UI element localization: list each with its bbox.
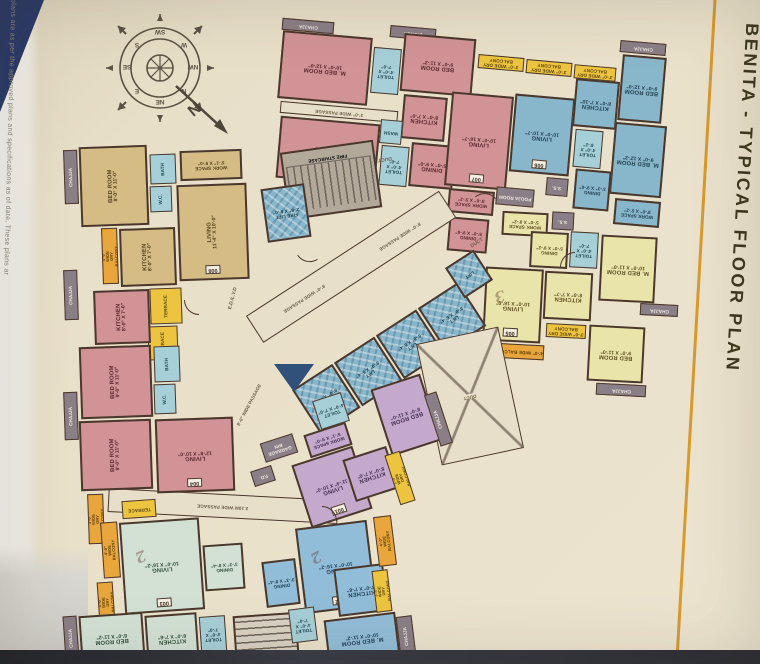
flat-number-005: 005 (502, 327, 518, 337)
compass-label-se: SE (122, 63, 131, 70)
room-005-kitchen: KITCHEN8'-0" X 7'-7" (543, 271, 593, 321)
room-ss: S.S. (545, 177, 568, 197)
chajja-strip: CHAJJA (63, 150, 79, 204)
room-004-wc: W.C. (153, 384, 176, 415)
balcony: 4'-0" WIDE BALCONY (373, 515, 397, 567)
fd-room: F.D. (250, 465, 276, 487)
room-006-dining: DINING3'-3" X 9'-6" (572, 169, 611, 212)
compass-label-sw: SW (154, 28, 165, 35)
fire-lift: FIRE LIFT2'-6" X 8'-0" (260, 183, 311, 243)
room-004-bedroom-1: BED ROOM9'-0" X 11'-0" (79, 345, 153, 419)
room-004-bedroom-2: BED ROOM9'-0" X 11'-0" (79, 419, 153, 491)
room-003-dining: DINING3'-3" X 8'-4" (202, 543, 245, 592)
room-ss: S.S. (552, 211, 575, 230)
room-006-work-space: WORK SPACE8'-0" X 5'-2" (613, 198, 661, 228)
unit-type-numeral: 3 (492, 286, 507, 306)
compass-label-ne: NE (155, 98, 165, 105)
room-004-kitchen: KITCHEN8'-0" X 7'-0" (93, 289, 151, 345)
door-arc-icon (184, 300, 199, 315)
photo-bottom-edge (0, 650, 760, 664)
room-007-dining: DINING5'-0" X 9'-6" (447, 216, 490, 253)
compass-label-e: E (134, 87, 139, 94)
room-005-bedroom: BED ROOM9'-0" X 11'-0" (587, 325, 646, 384)
room-008-bath: BATH (149, 154, 176, 185)
room-006-toilet: TOILET4'-0" X 6'-2" (572, 129, 603, 169)
room-002-toilet: TOILET4'-0" X 7'-0" (288, 607, 318, 644)
room-pooja: POOJA ROOM (495, 186, 534, 207)
room-003-toilet: TOILET4'-0" X 7'-0" (199, 615, 227, 653)
chajja-strip: CHAJJA (63, 392, 79, 440)
garbage-bin: GARBAGE BIN (260, 433, 299, 463)
room-006-bedroom: BED ROOM9'-0" X 12'-0" (617, 54, 667, 124)
flat-number-003: 003 (156, 597, 172, 607)
compass-rose-icon: SW NE SE NW S W E N N (96, 6, 246, 142)
room-004-living: LIVING12'-8" X 10'-0" 004 (155, 417, 236, 494)
room-002-dining: DINING3'-3" X 8'-4" (261, 558, 300, 608)
compass-label-w: W (180, 41, 187, 48)
room-006-master-bedroom: M. BED ROOM9'-0" X 12'-2" (609, 122, 667, 198)
passage-8ft-label: 8'-0" WIDE PASSAGE (230, 373, 275, 441)
room-004-bath: BATH (153, 346, 180, 383)
terrace: TERRACE (149, 287, 182, 324)
chajja-strip: CHAJJA (640, 303, 679, 317)
flat-number-007: 007 (468, 173, 484, 183)
svg-text:N: N (184, 98, 204, 118)
terrace: TERRACE (121, 499, 156, 519)
door-arc-icon (297, 247, 318, 268)
dry-balcony: 3'-0" WIDE DRY BALCONY (525, 59, 572, 77)
room-007-toilet-2: TOILET4'-0" X 7'-0" (378, 145, 409, 187)
room-007-bedroom: BED ROOM9'-0" X 11'-2" (400, 33, 477, 97)
chajja-strip: CHAJJA (596, 383, 647, 398)
flat-number-004: 004 (187, 478, 202, 488)
room-006-kitchen: KITCHEN8'-0" X 7'-10" (572, 78, 620, 130)
balcony: 4'-0" WIDE BALCONY (100, 521, 121, 578)
north-arrow-icon: N (176, 86, 228, 134)
room-007-master-bedroom: M. BED ROOM10'-0" X 12'-0" (277, 30, 373, 106)
room-007-toilet: TOILET4'-0" X 7'-0" (370, 47, 402, 95)
room-007-living: LIVING10'-0" X 16'-7" 007 (444, 91, 514, 190)
room-wash: WASH (379, 119, 403, 145)
room-006-living: LIVING10'-0" X 10'-7" 006 (509, 94, 576, 177)
room-008-work-space: WORK SPACE5'-1" X 9'-0" (179, 149, 242, 181)
room-005-master-bedroom: M. BED ROOM10'-0" X 11'-0" (598, 235, 657, 304)
flat-number-006: 006 (531, 159, 547, 169)
unit-type-numeral: 2 (132, 546, 149, 567)
chajja-strip: CHAJJA (63, 270, 79, 320)
dry-balcony: 3'-0" WIDE DRY BALCONY (477, 54, 524, 72)
room-007-kitchen: KITCHEN8'-0" X 7'-0" (400, 94, 448, 142)
floor-plan-photo: r plans are as per the approved plans an… (0, 0, 760, 664)
flat-number-008: 008 (205, 265, 220, 275)
ed-lvd-label: E.D./L.V.D (228, 287, 239, 310)
room-008-wc: W.C. (150, 186, 173, 213)
room-008-kitchen: KITCHEN8'-0" X 7'-0" (119, 227, 177, 287)
dry-balcony: 4'-0" WIDE DRY BALCONY (101, 228, 119, 285)
compass-label-nw: NW (187, 63, 199, 70)
dry-balcony: 3'-0" WIDE DRY BALCONY (546, 323, 587, 339)
room-008-bedroom: BED ROOM8'-0" X 11'-0" (79, 145, 150, 227)
room-003-living: LIVING10'-0" X 16'-2" 003 2 (119, 517, 205, 614)
compass-label-s: S (134, 41, 139, 48)
room-008-living: LIVING11'-4" X 10'-0" 008 (176, 183, 249, 281)
